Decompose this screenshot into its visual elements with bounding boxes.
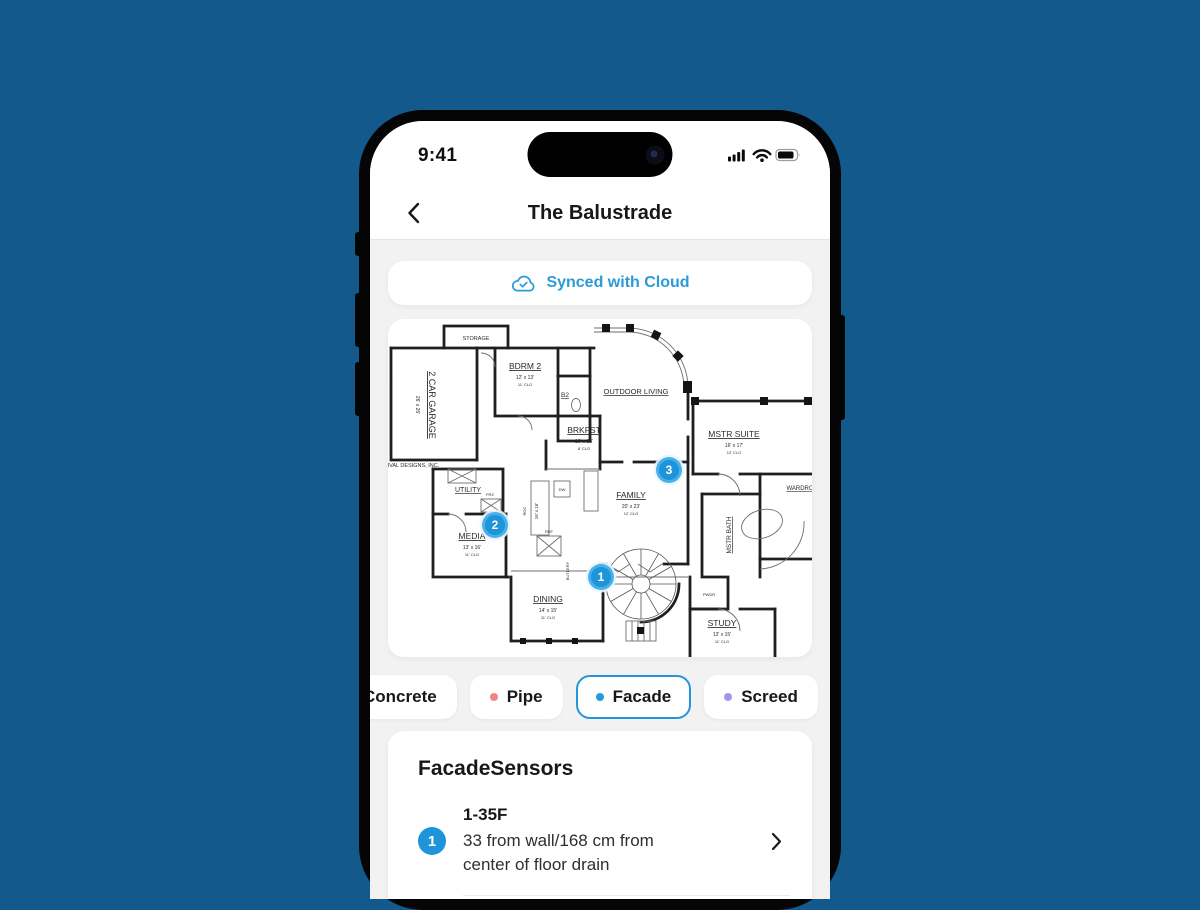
power-button bbox=[839, 315, 845, 420]
plan-room-label: 16' x 16' bbox=[534, 503, 539, 520]
plan-room-label: 8' CLG bbox=[578, 446, 590, 451]
filter-chip-row: ConcretePipeFacadeScreed bbox=[370, 673, 830, 723]
plan-room-label: UTILITY bbox=[455, 487, 481, 494]
plan-room-label: 26' x 26' bbox=[414, 396, 420, 414]
plan-room-label: 12' CLG bbox=[727, 450, 742, 455]
plan-room-label: 11' CLG bbox=[465, 552, 479, 557]
chip-dot bbox=[490, 693, 498, 701]
plan-room-label: STUDY bbox=[708, 618, 737, 628]
sync-status-label: Synced with Cloud bbox=[546, 274, 689, 292]
cloud-check-icon bbox=[510, 274, 537, 293]
sensor-panel-title: FacadeSensors bbox=[418, 757, 790, 781]
plan-room-label: BUTLERY bbox=[565, 561, 570, 580]
volume-down-button bbox=[355, 362, 361, 416]
plan-room-label: MSTR SUITE bbox=[708, 429, 760, 439]
plan-room-label: PWDR bbox=[703, 592, 715, 597]
mute-switch bbox=[355, 232, 361, 256]
cellular-signal-icon bbox=[728, 150, 745, 162]
sensor-text: 1-35F33 from wall/168 cm from center of … bbox=[463, 805, 771, 877]
plan-room-label: FAMILY bbox=[616, 490, 646, 500]
plan-room-label: 13' x 15' bbox=[713, 632, 731, 638]
plan-room-label: BRKFST bbox=[567, 425, 601, 435]
sensor-description: 33 from wall/168 cm from center of floor… bbox=[463, 829, 701, 877]
app-screen: 9:41 bbox=[370, 121, 830, 899]
filter-chip-screed[interactable]: Screed bbox=[704, 675, 818, 719]
plan-room-label: REF bbox=[545, 529, 554, 534]
chip-label: Screed bbox=[741, 687, 798, 707]
sensor-list: 11-35F33 from wall/168 cm from center of… bbox=[418, 805, 790, 896]
plan-paper bbox=[388, 319, 812, 657]
camera-lens-icon bbox=[646, 145, 665, 164]
sensor-panel: FacadeSensors 11-35F33 from wall/168 cm … bbox=[388, 731, 812, 899]
plan-room-label: 11' CLG bbox=[541, 615, 555, 620]
wifi-dot bbox=[760, 158, 764, 162]
plan-room-label: ROC bbox=[522, 506, 527, 515]
chevron-left-icon bbox=[407, 202, 420, 224]
plan-room-label: FRZ bbox=[486, 492, 494, 497]
plan-marker-1[interactable]: 1 bbox=[586, 562, 617, 593]
plan-room-label: 2 CAR GARAGE bbox=[427, 371, 437, 439]
wifi-icon bbox=[754, 150, 771, 157]
nav-bar: The Balustrade bbox=[370, 187, 830, 239]
plan-marker-number: 2 bbox=[492, 518, 499, 532]
filter-chip-facade[interactable]: Facade bbox=[576, 675, 692, 719]
app-header: 9:41 bbox=[370, 121, 830, 240]
plan-room-label: 10' x 13' bbox=[575, 439, 593, 445]
chevron-right-icon bbox=[771, 832, 782, 851]
status-time: 9:41 bbox=[418, 145, 457, 167]
plan-room-label: 12' CLG bbox=[624, 511, 639, 516]
plan-marker-2[interactable]: 2 bbox=[480, 510, 511, 541]
plan-marker-number: 1 bbox=[598, 570, 605, 584]
plan-room-label: 12' x 13' bbox=[516, 375, 534, 381]
status-bar: 9:41 bbox=[370, 121, 830, 187]
plan-marker-3[interactable]: 3 bbox=[654, 455, 685, 486]
plan-room-label: DINING bbox=[533, 594, 563, 604]
chip-label: Pipe bbox=[507, 687, 543, 707]
status-icons bbox=[728, 148, 800, 162]
filter-chip-concrete[interactable]: Concrete bbox=[370, 675, 457, 719]
dynamic-island bbox=[528, 132, 673, 177]
plan-room-label: DW bbox=[559, 487, 566, 492]
chip-label: Facade bbox=[613, 687, 672, 707]
plan-room-label: BDRM 2 bbox=[509, 361, 541, 371]
plan-room-label: 13' x 16' bbox=[463, 545, 481, 551]
plan-room-label: 11' CLG bbox=[715, 639, 729, 644]
plan-room-label: MSTR BATH bbox=[726, 516, 733, 553]
plan-room-label: OUTDOOR LIVING bbox=[603, 387, 668, 396]
plan-room-label: 11' CLG bbox=[518, 382, 532, 387]
plan-room-label: 20' x 23' bbox=[622, 504, 640, 510]
chip-dot bbox=[596, 693, 604, 701]
plan-room-label: 14' x 15' bbox=[539, 608, 557, 614]
list-divider bbox=[463, 895, 790, 896]
floor-plan-card[interactable]: STORAGE2 CAR GARAGE26' x 26'BDRM 212' x … bbox=[388, 319, 812, 657]
volume-up-button bbox=[355, 293, 361, 347]
chip-label: Concrete bbox=[370, 687, 437, 707]
chip-dot bbox=[724, 693, 732, 701]
page-content: Synced with Cloud bbox=[370, 261, 830, 899]
plan-room-label: 16' x 17' bbox=[725, 443, 743, 449]
sensor-name: 1-35F bbox=[463, 805, 771, 825]
sensor-badge: 1 bbox=[418, 827, 446, 855]
sync-status-banner[interactable]: Synced with Cloud bbox=[388, 261, 812, 305]
battery-icon bbox=[776, 150, 800, 161]
plan-room-label: ARCHIVAL DESIGNS, INC. bbox=[388, 463, 440, 469]
plan-room-label: STORAGE bbox=[463, 336, 490, 342]
phone-frame: 9:41 bbox=[359, 110, 841, 910]
plan-marker-number: 3 bbox=[666, 463, 673, 477]
plan-room-label: B2 bbox=[561, 392, 569, 399]
plan-room-label: WARDROBE bbox=[786, 486, 812, 492]
floor-plan-svg: STORAGE2 CAR GARAGE26' x 26'BDRM 212' x … bbox=[388, 319, 812, 657]
filter-chip-pipe[interactable]: Pipe bbox=[470, 675, 563, 719]
back-button[interactable] bbox=[400, 198, 426, 228]
page-title: The Balustrade bbox=[528, 202, 672, 225]
sensor-row[interactable]: 11-35F33 from wall/168 cm from center of… bbox=[418, 805, 790, 877]
